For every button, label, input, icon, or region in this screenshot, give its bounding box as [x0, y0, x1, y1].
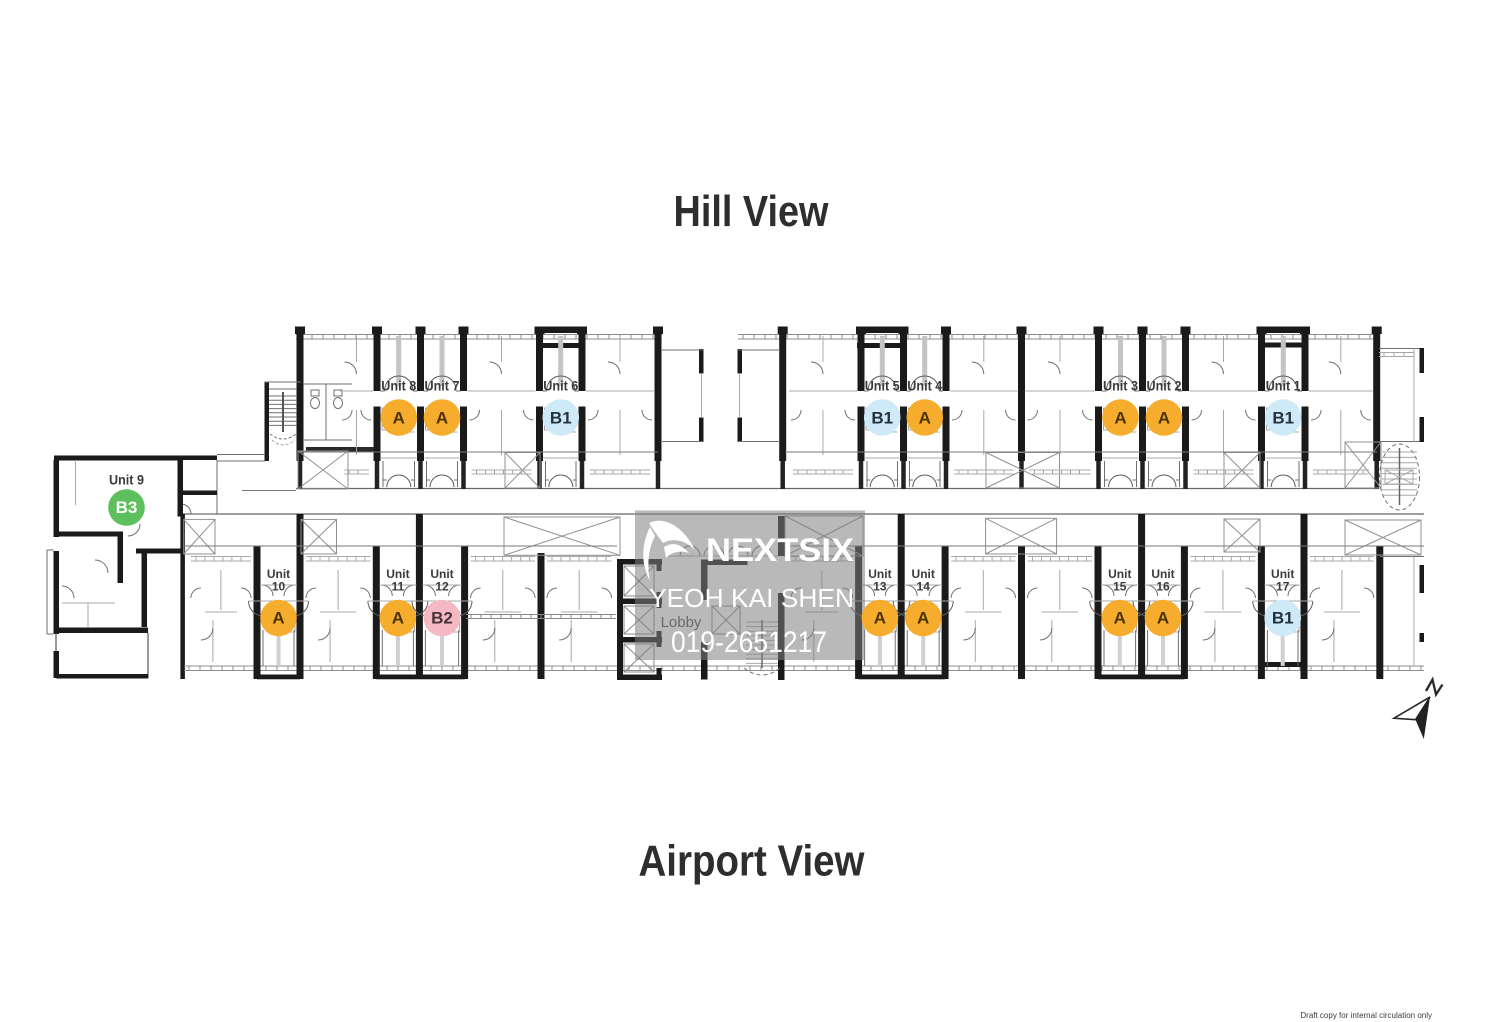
svg-text:B1: B1 — [1272, 409, 1294, 428]
svg-text:A: A — [874, 609, 886, 628]
svg-text:A: A — [393, 409, 405, 428]
svg-text:Unit 4: Unit 4 — [907, 379, 942, 394]
svg-text:Draft copy for internal circul: Draft copy for internal circulation only — [1300, 1011, 1432, 1020]
svg-text:Unit 7: Unit 7 — [425, 379, 460, 394]
svg-text:B1: B1 — [550, 409, 572, 428]
svg-text:A: A — [436, 409, 448, 428]
svg-text:Unit 6: Unit 6 — [543, 379, 578, 394]
svg-text:A: A — [272, 609, 284, 628]
svg-text:A: A — [917, 609, 929, 628]
svg-text:A: A — [919, 409, 931, 428]
svg-text:16: 16 — [1156, 580, 1170, 594]
svg-text:15: 15 — [1113, 580, 1127, 594]
svg-text:Unit 3: Unit 3 — [1103, 379, 1138, 394]
svg-text:Airport View: Airport View — [639, 837, 866, 886]
svg-text:Unit 1: Unit 1 — [1266, 379, 1301, 394]
svg-text:Unit 9: Unit 9 — [109, 473, 144, 488]
svg-text:17: 17 — [1276, 580, 1290, 594]
svg-text:A: A — [1114, 609, 1126, 628]
svg-text:019-2651217: 019-2651217 — [671, 626, 827, 659]
svg-text:Unit 8: Unit 8 — [381, 379, 416, 394]
svg-text:B1: B1 — [871, 409, 893, 428]
svg-text:13: 13 — [873, 580, 887, 594]
svg-text:10: 10 — [272, 580, 286, 594]
svg-text:NEXTSIX: NEXTSIX — [706, 532, 855, 568]
svg-text:12: 12 — [435, 580, 449, 594]
svg-text:Hill View: Hill View — [674, 187, 830, 236]
svg-text:B1: B1 — [1272, 609, 1294, 628]
svg-text:A: A — [1114, 409, 1126, 428]
svg-text:11: 11 — [392, 580, 405, 594]
svg-text:YEOH KAI SHEN: YEOH KAI SHEN — [649, 583, 854, 613]
svg-text:Unit 2: Unit 2 — [1147, 379, 1182, 394]
svg-text:B3: B3 — [116, 498, 138, 517]
svg-text:14: 14 — [917, 580, 931, 594]
svg-text:B2: B2 — [431, 609, 453, 628]
svg-text:A: A — [1158, 409, 1170, 428]
svg-text:A: A — [1157, 609, 1169, 628]
svg-text:A: A — [392, 609, 404, 628]
svg-text:Unit 5: Unit 5 — [865, 379, 900, 394]
